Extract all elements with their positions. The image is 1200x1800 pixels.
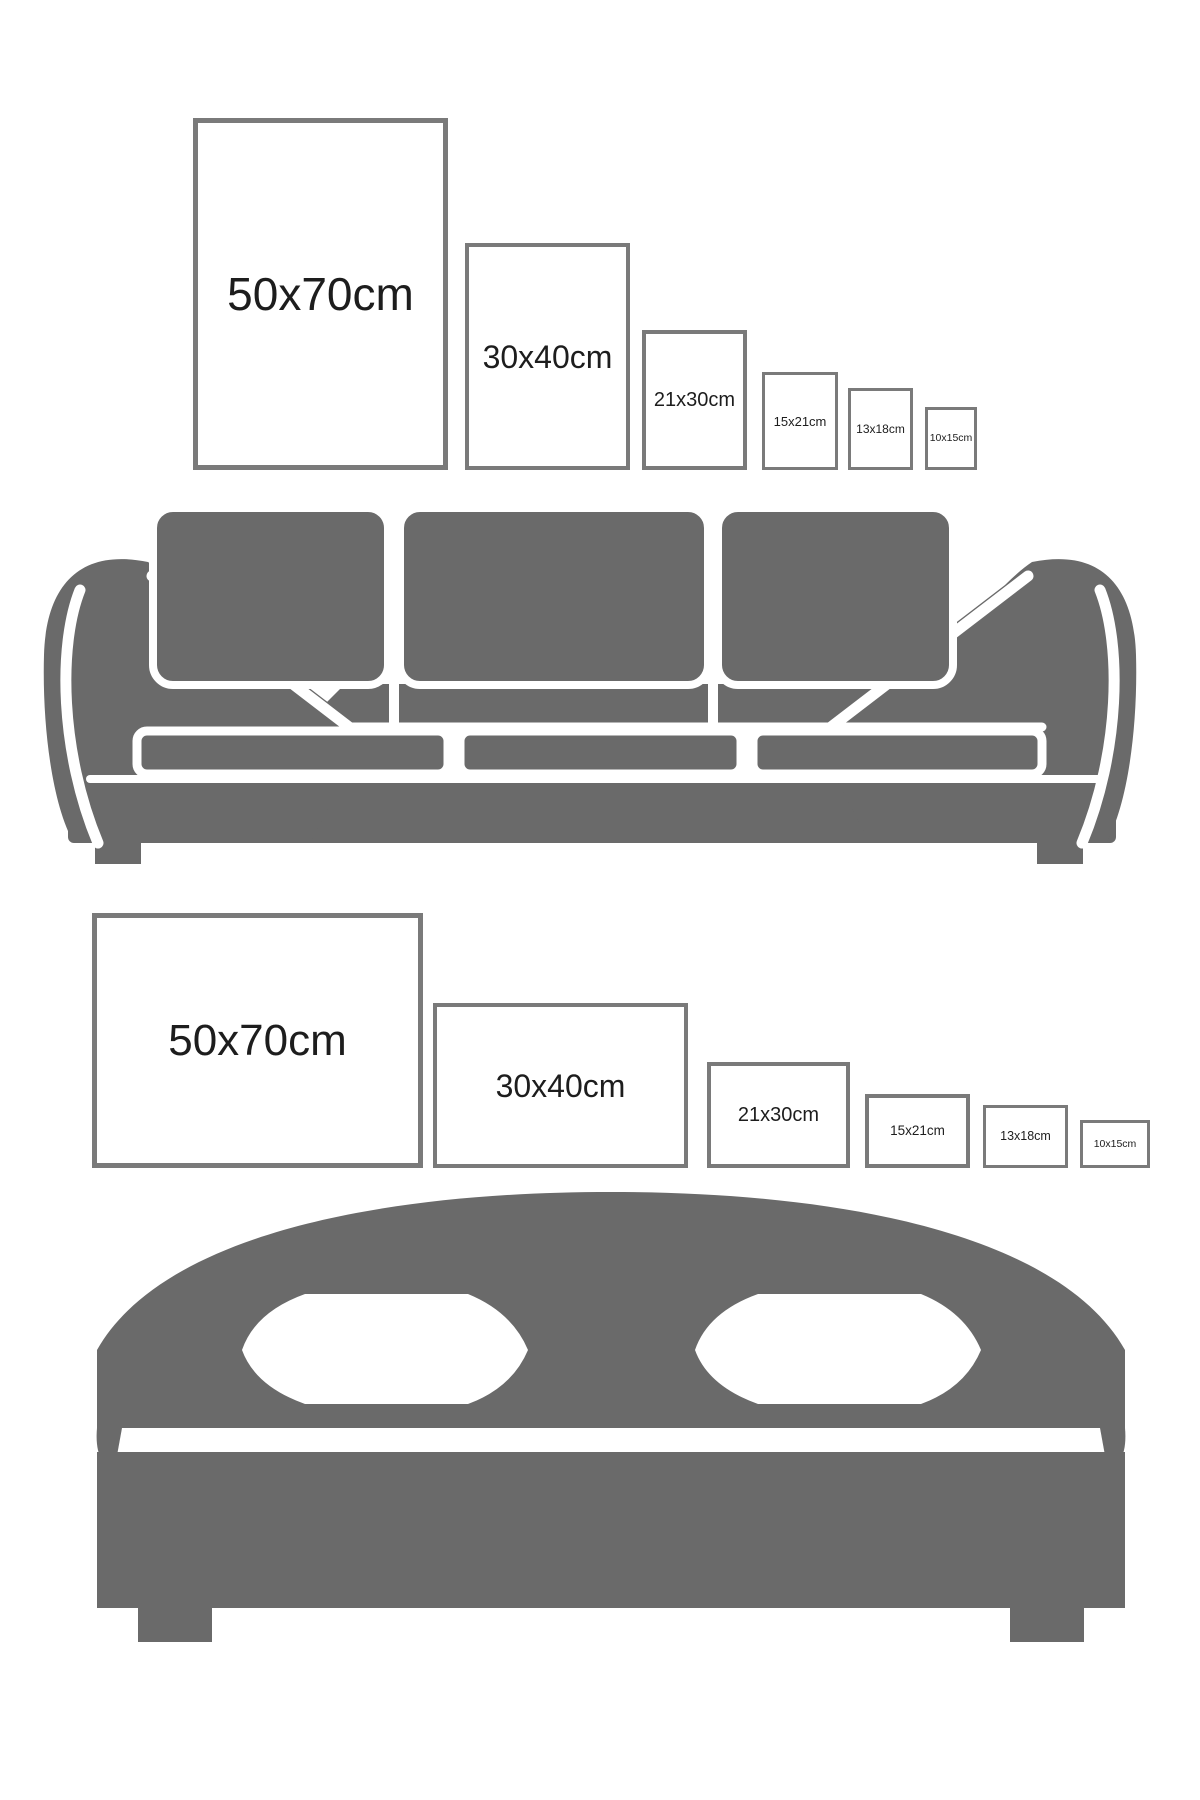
size-frame-portrait-13x18: 13x18cm: [848, 388, 913, 470]
size-frame-landscape-15x21: 15x21cm: [865, 1094, 970, 1168]
size-label-15x21: 15x21cm: [890, 1124, 945, 1138]
size-frame-portrait-21x30: 21x30cm: [642, 330, 747, 470]
bed-legs: [138, 1608, 1084, 1642]
size-frame-portrait-10x15: 10x15cm: [925, 407, 977, 470]
size-frame-landscape-10x15: 10x15cm: [1080, 1120, 1150, 1168]
size-label-13x18: 13x18cm: [1000, 1130, 1051, 1143]
size-label-10x15: 10x15cm: [930, 433, 973, 444]
bed-base: [97, 1452, 1125, 1608]
size-label-50x70: 50x70cm: [227, 271, 414, 317]
size-label-30x40: 30x40cm: [483, 341, 613, 373]
size-frame-portrait-30x40: 30x40cm: [465, 243, 630, 470]
size-frame-portrait-50x70: 50x70cm: [193, 118, 448, 470]
size-frame-landscape-30x40: 30x40cm: [433, 1003, 688, 1168]
bed-silhouette: [90, 1185, 1135, 1650]
sofa-seat-cushions: [90, 731, 1098, 779]
size-frame-landscape-21x30: 21x30cm: [707, 1062, 850, 1168]
size-label-10x15: 10x15cm: [1094, 1139, 1137, 1150]
size-label-13x18: 13x18cm: [856, 423, 905, 435]
size-label-50x70: 50x70cm: [168, 1019, 347, 1063]
sofa-back-cushions: [153, 508, 953, 685]
size-label-30x40: 30x40cm: [496, 1070, 626, 1102]
size-label-21x30: 21x30cm: [654, 390, 735, 410]
size-frame-landscape-50x70: 50x70cm: [92, 913, 423, 1168]
size-label-15x21: 15x21cm: [774, 415, 827, 428]
bed-headboard: [97, 1192, 1126, 1472]
poster-size-guide: 50x70cm 30x40cm 21x30cm 15x21cm 13x18cm …: [0, 0, 1200, 1800]
sofa-silhouette: [40, 500, 1140, 870]
size-label-21x30: 21x30cm: [738, 1105, 819, 1125]
size-frame-landscape-13x18: 13x18cm: [983, 1105, 1068, 1168]
size-frame-portrait-15x21: 15x21cm: [762, 372, 838, 470]
